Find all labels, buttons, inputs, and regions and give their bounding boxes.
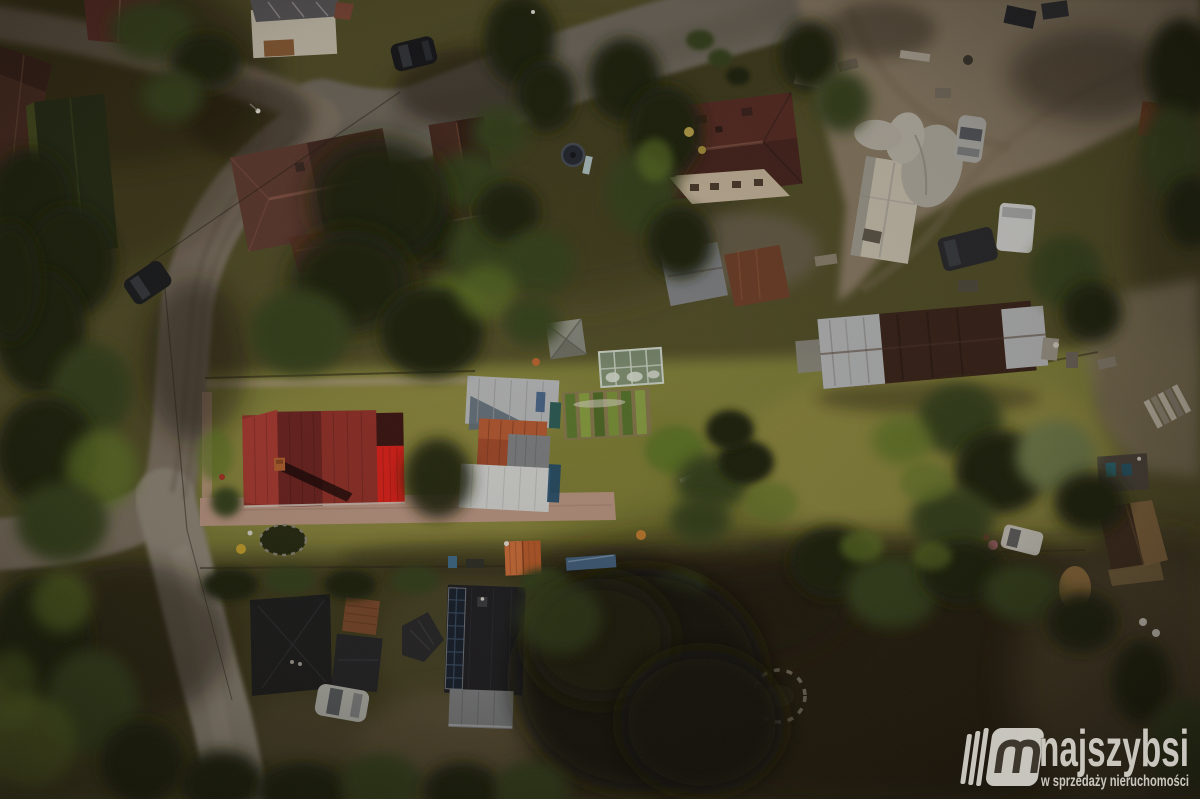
watermark-tagline: w sprzedaży nieruchomości	[1040, 773, 1189, 790]
atmosphere	[0, 0, 1200, 799]
aerial-photo-canvas: najszybsi w sprzedaży nieruchomości	[0, 0, 1200, 799]
aerial-photo: najszybsi w sprzedaży nieruchomości	[0, 0, 1200, 799]
watermark-brand: najszybsi	[1039, 720, 1189, 778]
